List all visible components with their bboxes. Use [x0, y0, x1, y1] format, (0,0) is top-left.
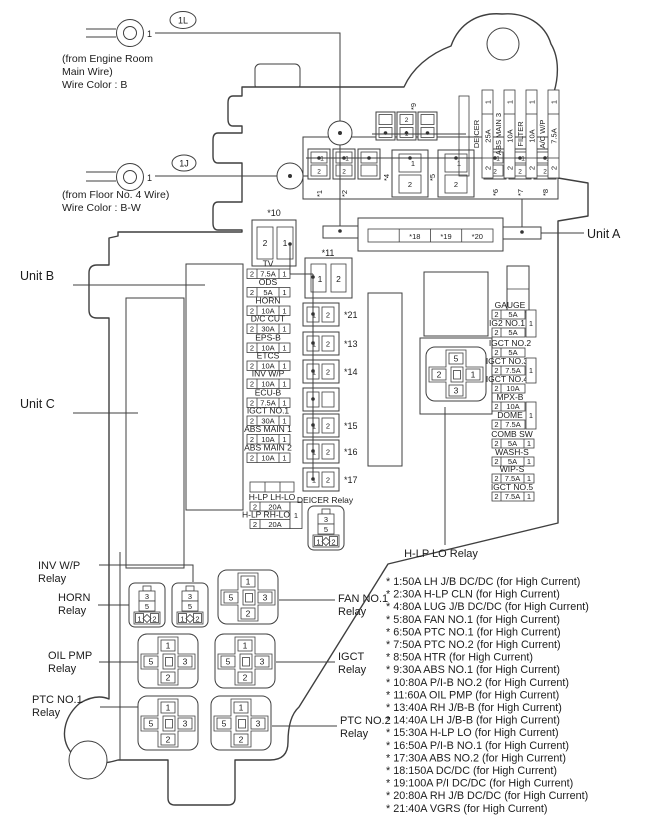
relay-pin: 3 [256, 719, 261, 729]
fuse-slot-label: *1 [315, 190, 324, 197]
terminal: 2 [518, 169, 522, 176]
unit-a-label: Unit A [587, 227, 621, 241]
terminal: 1 [282, 288, 286, 297]
fuse-label: HORN [255, 296, 280, 306]
unit-a-cell-label: *19 [440, 232, 451, 241]
relay-pin: 1 [166, 703, 171, 713]
junction-dot [311, 477, 315, 481]
fuse-amp: 10A [528, 129, 537, 142]
legend-line: * 14:40A LH J/B-B (for High Current) [386, 715, 560, 727]
empty-fuse-box [250, 482, 294, 492]
junction-dot [520, 230, 524, 234]
fuse-slot-label: *8 [541, 189, 550, 196]
terminal: 1 [320, 156, 324, 163]
connector-label: *10 [267, 208, 281, 218]
junction-dot [288, 174, 292, 178]
wire-tag: 1J [179, 159, 189, 169]
legend-line: * 6:50A PTC NO.1 (for High Current) [386, 626, 561, 638]
fuse-label: MPX-B [497, 392, 524, 402]
junction-dot [543, 156, 547, 160]
relay-pin: 2 [166, 735, 171, 745]
terminal: 2 [484, 166, 493, 170]
relay-label: OIL PMP [48, 650, 92, 662]
relay-pin: 3 [260, 657, 265, 667]
fuse-label: ABS MAIN 3 [494, 113, 503, 155]
junction-dot [288, 242, 292, 246]
connector-label: *14 [344, 367, 358, 377]
legend-line: * 5:80A FAN NO.1 (for High Current) [386, 614, 560, 626]
fuse-label: A/C W/P [538, 120, 547, 149]
fuse-amp: 25A [484, 129, 493, 142]
legend-line: * 7:50A PTC NO.2 (for High Current) [386, 639, 561, 651]
relay-label: Relay [340, 728, 369, 740]
fuse-label: EPS-B [255, 333, 281, 343]
junction-dot [454, 156, 458, 160]
wire-note: (from Floor No. 4 Wire) [62, 189, 169, 201]
mounting-hole-bottom [69, 741, 107, 779]
fuse-slot-label: *9 [409, 103, 418, 110]
wire-note: Main Wire) [62, 66, 113, 78]
fuse-label: ETCS [257, 351, 280, 361]
fuse-label: D/C CUT [251, 314, 285, 324]
fuse-label: GAUGE [495, 300, 526, 310]
legend-line: * 9:30A ABS NO.1 (for High Current) [386, 664, 560, 676]
relay-pin: 3 [263, 593, 268, 603]
junction-dot [311, 449, 315, 453]
fuse-amp: 5A [508, 328, 517, 337]
relay-pin: 2 [243, 673, 248, 683]
fuse-label: WASH-S [495, 447, 529, 457]
relay-pin: 2 [246, 609, 251, 619]
relay-pin: 1 [180, 615, 184, 624]
terminal: 2 [326, 448, 330, 457]
legend-line: * 17:30A ABS NO.2 (for High Current) [386, 752, 566, 764]
relay-pin: 3 [324, 515, 328, 524]
mounting-hole-top [487, 28, 519, 60]
fuse-hlp-group: H-LP LH-LO 2 20A H-LP RH-LO 2 20A 1 [242, 492, 302, 529]
junction-dot [338, 229, 342, 233]
junction-dot [317, 156, 321, 160]
fuse-label: IGCT NO.3 [486, 356, 529, 366]
terminal: 1 [529, 319, 533, 328]
relay-label: H-LP LO Relay [404, 548, 478, 560]
terminal: 1 [282, 270, 286, 279]
relay-pin: 1 [316, 538, 320, 547]
junction-dot [408, 156, 412, 160]
terminal: 2 [336, 274, 341, 284]
terminal: 1 [527, 492, 531, 501]
relay-label: Relay [38, 573, 67, 585]
legend-line: * 8:50A HTR (for High Current) [386, 652, 533, 664]
fuse-label: ECU-B [255, 388, 282, 398]
terminal: 2 [506, 166, 515, 170]
fuse-slot-label: *4 [382, 174, 391, 181]
terminal: 1 [282, 325, 286, 334]
fuse-slot-blank [358, 149, 380, 179]
legend-line: * 19:100A P/I DC/DC (for High Current) [386, 778, 573, 790]
wire-note: Wire Color : B-W [62, 202, 141, 214]
legend-line: * 20:80A RH J/B DC/DC (for High Current) [386, 790, 588, 802]
unit-a-cell-label: *18 [409, 232, 420, 241]
relay-pin: 1 [246, 577, 251, 587]
fuse-label: FILTER [516, 121, 525, 147]
terminal: 2 [342, 169, 346, 176]
connector-label: *16 [344, 447, 358, 457]
legend-line: * 18:150A DC/DC (for High Current) [386, 765, 557, 777]
relay-pin: 2 [331, 538, 335, 547]
fuse-label: ODS [259, 277, 278, 287]
legend-line: * 21:40A VGRS (for High Current) [386, 803, 547, 815]
fuse-slot-label: *5 [428, 174, 437, 181]
legend-line: * 13:40A RH J/B-B (for High Current) [386, 702, 562, 714]
relay-label: PTC NO.1 [32, 694, 83, 706]
terminal: 2 [250, 380, 254, 389]
terminal: 1 [521, 156, 525, 163]
wire-note: Wire Color : B [62, 79, 127, 91]
relay-pin: 2 [239, 735, 244, 745]
relay-pin: 5 [149, 719, 154, 729]
terminal: 1 [147, 29, 152, 39]
relay-pin: 3 [183, 719, 188, 729]
terminal: 1 [506, 100, 515, 104]
terminal: 2 [326, 368, 330, 377]
fuse-label: IGCT NO.4 [486, 374, 529, 384]
fuse-amp: 7.5A [550, 128, 559, 143]
junction-dot [426, 131, 430, 135]
terminal: 1 [550, 100, 559, 104]
ring-terminal-icon [117, 20, 144, 47]
legend: * 1:50A LH J/B DC/DC (for High Current) … [386, 576, 589, 815]
junction-dot [367, 156, 371, 160]
connector-label: *13 [344, 339, 358, 349]
relay-pin: 3 [188, 592, 192, 601]
wire-tag: 1L [178, 16, 188, 26]
terminal: 1 [282, 454, 286, 463]
terminal: 2 [317, 169, 321, 176]
junction-dot [311, 275, 315, 279]
relay-pin: 5 [145, 602, 149, 611]
relay-pin: 1 [243, 641, 248, 651]
relay-pin: 1 [471, 370, 476, 380]
legend-line: * 4:80A LUG J/B DC/DC (for High Current) [386, 601, 589, 613]
relay-pin: 1 [166, 641, 171, 651]
terminal: 2 [326, 422, 330, 431]
fuse-label: H-LP LH-LO [249, 492, 296, 502]
relay-pin: 5 [229, 593, 234, 603]
terminal: 2 [250, 454, 254, 463]
terminal: 1 [282, 380, 286, 389]
relay-label: FAN NO.1 [338, 593, 388, 605]
relay-label: DEICER Relay [297, 495, 354, 505]
legend-line: * 16:50A P/I-B NO.1 (for High Current) [386, 740, 569, 752]
fuse-amp: 10A [506, 129, 515, 142]
fuse-label: IGCT NO.2 [489, 338, 532, 348]
relay-pin: 5 [226, 657, 231, 667]
terminal: 1 [529, 411, 533, 420]
relay-pin: 2 [166, 673, 171, 683]
relay-pin: 1 [239, 703, 244, 713]
terminal: 1 [294, 511, 298, 520]
relay-pin: 5 [222, 719, 227, 729]
relay-pin: 2 [195, 615, 199, 624]
fuse-box-diagram-page: 2 1 *9 1 2 *1 1 2 *2 [0, 0, 670, 834]
terminal: 1 [484, 100, 493, 104]
junction-dot [338, 131, 342, 135]
relay-pin: 5 [149, 657, 154, 667]
junction-dot [384, 131, 388, 135]
connector-label: *15 [344, 421, 358, 431]
terminal: 2 [326, 311, 330, 320]
terminal: 2 [263, 238, 268, 248]
relay-pin: 5 [454, 354, 459, 364]
junction-dot [311, 312, 315, 316]
relay-pin: 3 [454, 386, 459, 396]
terminal: 2 [250, 288, 254, 297]
terminal: 2 [550, 166, 559, 170]
fuse-label: ABS MAIN 1 [244, 424, 292, 434]
fuse-amp: 7.5A [505, 420, 520, 429]
fuse-slot-label: *6 [491, 189, 500, 196]
wire-note: (from Engine Room [62, 53, 153, 65]
fuse-amp: 20A [268, 520, 281, 529]
diagram-canvas: 2 1 *9 1 2 *1 1 2 *2 [0, 0, 670, 834]
terminal: 2 [250, 270, 254, 279]
relay-pin: 3 [183, 657, 188, 667]
connector-label: *21 [344, 310, 358, 320]
relay-pin: 2 [152, 615, 156, 624]
fuse-label: INV W/P [252, 369, 285, 379]
junction-dot [493, 156, 497, 160]
unit-c-label: Unit C [20, 397, 55, 411]
relay-label: PTC NO.2 [340, 715, 391, 727]
terminal: 1 [318, 274, 323, 284]
connector-blank [303, 388, 339, 411]
box-top-tab [255, 64, 300, 90]
relay-label: HORN [58, 592, 90, 604]
fuse-amp: 7.5A [505, 492, 520, 501]
fuse-slot-label: *7 [516, 189, 525, 196]
terminal: 2 [326, 476, 330, 485]
junction-dot [342, 156, 346, 160]
terminal: 1 [527, 457, 531, 466]
legend-line: * 1:50A LH J/B DC/DC (for High Current) [386, 576, 580, 588]
unit-b-label: Unit B [20, 269, 54, 283]
fuse-label: ABS MAIN 2 [244, 443, 292, 453]
relay-label: Relay [58, 605, 87, 617]
terminal: 2 [493, 169, 497, 176]
terminal: 2 [494, 328, 498, 337]
legend-line: * 11:60A OIL PMP (for High Current) [386, 689, 559, 701]
relay-label: Relay [338, 664, 367, 676]
terminal: 1 [528, 100, 537, 104]
relay-label: INV W/P [38, 560, 80, 572]
relay-pin: 2 [437, 370, 442, 380]
fuse-label: IGCT NO.1 [247, 406, 290, 416]
terminal: 2 [250, 344, 254, 353]
relay-pin: 3 [145, 592, 149, 601]
unit-a-cell-label: *20 [472, 232, 483, 241]
ring-terminal-icon [117, 164, 144, 191]
terminal: 2 [454, 180, 458, 189]
terminal: 1 [282, 344, 286, 353]
fuse-amp: 10A [261, 454, 274, 463]
relay-pin: 5 [324, 525, 328, 534]
fuse-label: IGCT NO.5 [491, 482, 534, 492]
terminal: 2 [253, 520, 257, 529]
terminal: 2 [543, 169, 547, 176]
junction-dot [311, 341, 315, 345]
terminal: 2 [326, 340, 330, 349]
relay-label: IGCT [338, 651, 365, 663]
terminal: 2 [408, 180, 412, 189]
terminal: 1 [283, 238, 288, 248]
fuse-label: DEICER [472, 119, 481, 148]
relay-pin: 1 [137, 615, 141, 624]
terminal: 2 [528, 166, 537, 170]
junction-dot [311, 369, 315, 373]
fuse-label: WIP-S [500, 464, 525, 474]
junction-dot [518, 156, 522, 160]
relay-pin: 5 [188, 602, 192, 611]
terminal: 1 [345, 156, 349, 163]
junction-dot [311, 397, 315, 401]
terminal: 2 [494, 457, 498, 466]
junction-dot [405, 131, 409, 135]
fuse-label: TV [263, 259, 274, 269]
fuse-label: COMB SW [491, 429, 533, 439]
legend-line: * 15:30A H-LP LO (for High Current) [386, 727, 559, 739]
fuse-label: IG2 NO.1 [489, 318, 525, 328]
terminal: 1 [496, 156, 500, 163]
relay-label: Relay [48, 663, 77, 675]
fuse-label: DOME [497, 410, 523, 420]
fuse-slot-label: *2 [340, 190, 349, 197]
relay-label: Relay [32, 707, 61, 719]
junction-dot [311, 423, 315, 427]
terminal: 1 [411, 159, 415, 168]
terminal: 2 [494, 420, 498, 429]
relay-label: Relay [338, 606, 367, 618]
terminal: 1 [147, 173, 152, 183]
fuse-label: H-LP RH-LO [242, 510, 290, 520]
terminal: 1 [529, 366, 533, 375]
legend-line: * 2:30A H-LP CLN (for High Current) [386, 589, 560, 601]
connector-label: *17 [344, 475, 358, 485]
connector-label: *11 [322, 248, 335, 258]
terminal: 2 [405, 117, 409, 124]
terminal: 2 [494, 492, 498, 501]
legend-line: * 10:80A P/I-B NO.2 (for High Current) [386, 677, 569, 689]
terminal: 2 [250, 325, 254, 334]
